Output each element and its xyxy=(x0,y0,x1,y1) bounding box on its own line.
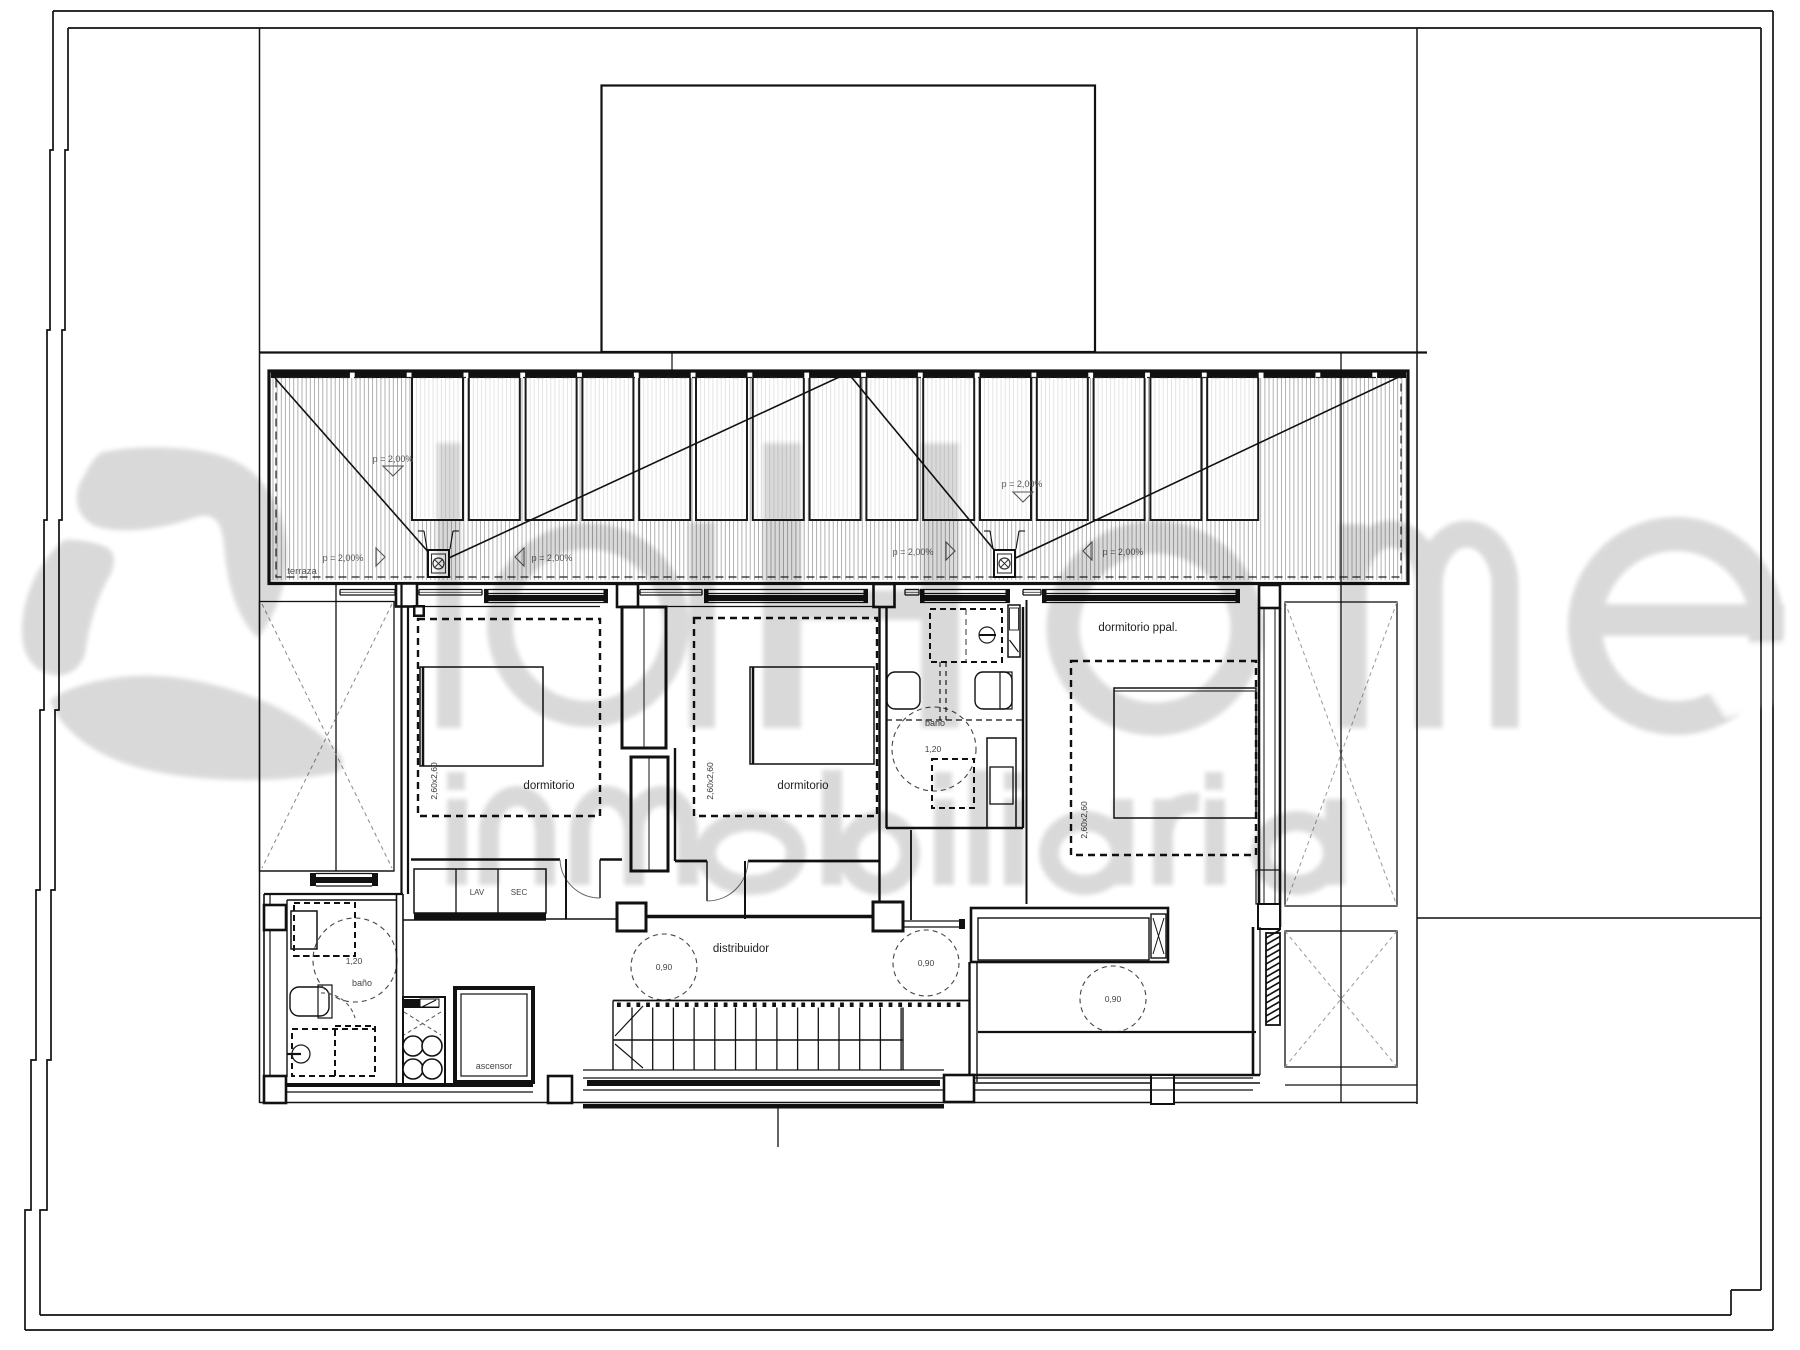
svg-text:baño: baño xyxy=(352,978,372,988)
svg-text:dormitorio ppal.: dormitorio ppal. xyxy=(1098,622,1177,634)
svg-text:dormitorio: dormitorio xyxy=(777,780,828,792)
svg-text:terraza: terraza xyxy=(287,566,317,577)
svg-text:ascensor: ascensor xyxy=(476,1061,513,1071)
svg-text:p = 2,00%: p = 2,00% xyxy=(323,553,364,563)
svg-text:2,60x2,60: 2,60x2,60 xyxy=(705,762,715,800)
svg-text:distribuidor: distribuidor xyxy=(713,943,769,955)
svg-text:0,90: 0,90 xyxy=(918,958,935,968)
svg-text:1,20: 1,20 xyxy=(925,744,942,754)
svg-text:0,90: 0,90 xyxy=(1105,994,1122,1004)
svg-text:SEC: SEC xyxy=(511,888,528,897)
svg-text:p = 2,00%: p = 2,00% xyxy=(1002,479,1043,489)
svg-text:LAV: LAV xyxy=(470,888,485,897)
svg-text:0,90: 0,90 xyxy=(656,962,673,972)
svg-text:p = 2,00%: p = 2,00% xyxy=(373,454,414,464)
svg-text:2,60x2,60: 2,60x2,60 xyxy=(429,762,439,800)
svg-text:1,20: 1,20 xyxy=(346,956,363,966)
